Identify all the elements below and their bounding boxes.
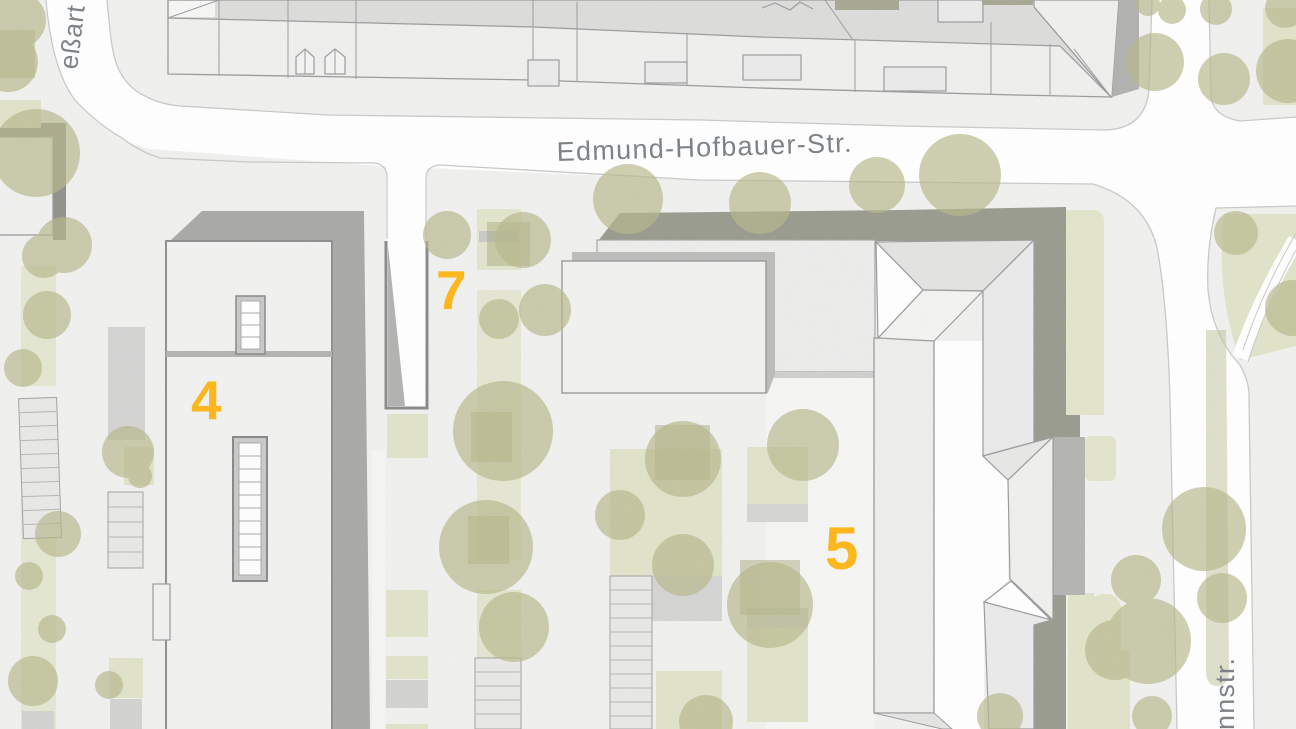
svg-text:7: 7 [436,259,467,321]
svg-text:5: 5 [825,515,858,582]
svg-text:nnstr.: nnstr. [1210,657,1240,729]
svg-text:4: 4 [191,369,222,431]
